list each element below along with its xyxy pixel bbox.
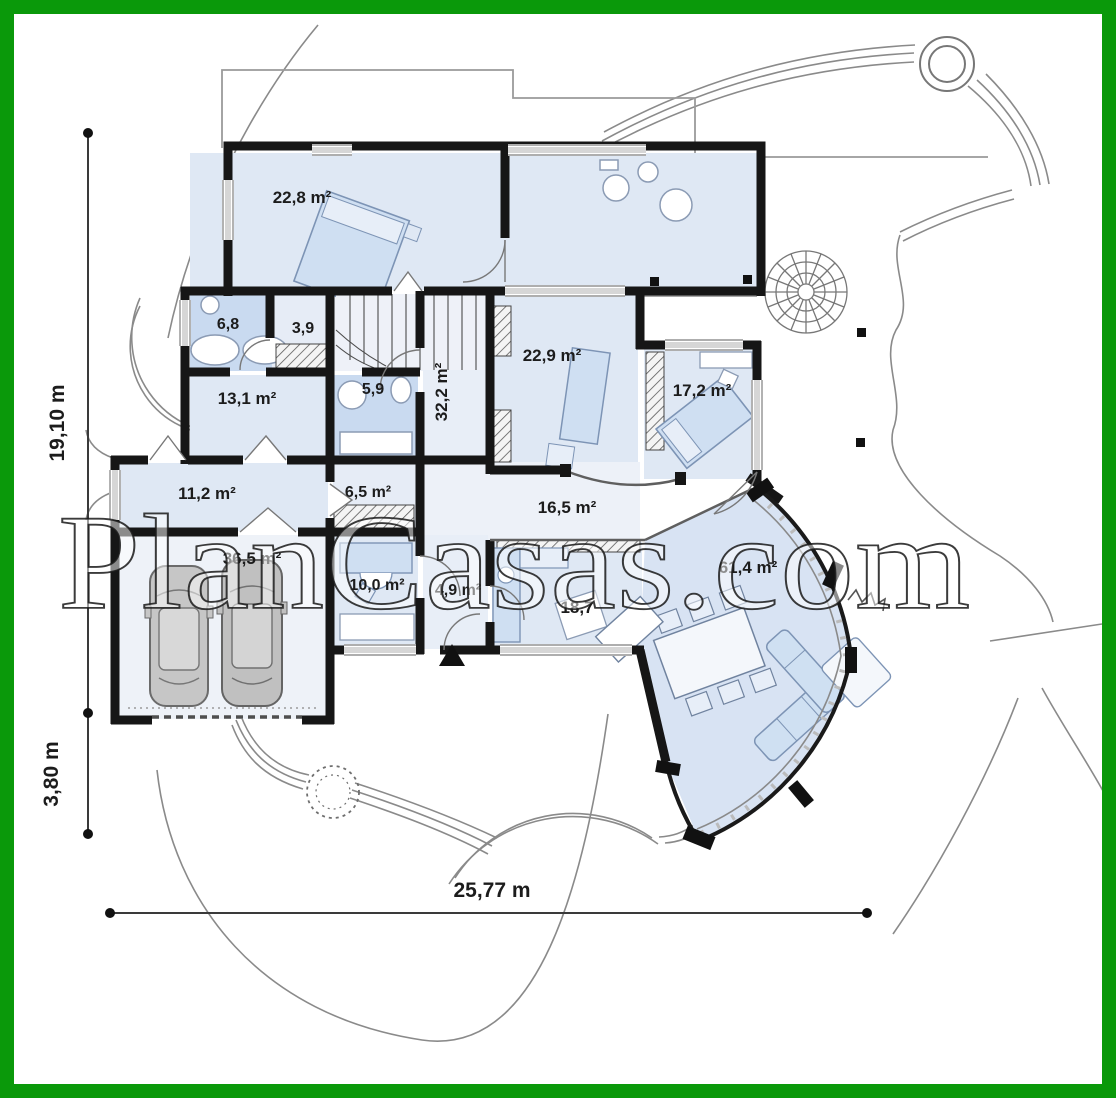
room-label-bath-top: 6,8 bbox=[217, 316, 239, 333]
room-label-bedroom-far-right: 17,2 m² bbox=[673, 381, 732, 400]
room-label-16-5: 16,5 m² bbox=[538, 498, 597, 517]
garden-circle-feature bbox=[920, 37, 974, 91]
plant-symbol bbox=[848, 590, 885, 611]
room-label-13-1: 13,1 m² bbox=[218, 389, 277, 408]
room-label-entry-hall: 4,9 m² bbox=[435, 582, 481, 599]
dimension-label-height-main: 19,10 m bbox=[46, 384, 69, 461]
floor-plan: 19,10 m 3,80 m 25,77 m 22,8 m² 6,8 3,9 1… bbox=[14, 14, 1102, 1084]
car bbox=[145, 566, 213, 706]
room-label-garage: 36,5 m² bbox=[223, 549, 282, 568]
room-label-living: 61,4 m² bbox=[719, 558, 778, 577]
spiral-staircase bbox=[765, 251, 847, 333]
room-label-bedroom-top: 22,8 m² bbox=[273, 188, 332, 207]
staircase bbox=[336, 294, 486, 370]
room-label-kitchen: 18,7 bbox=[560, 598, 593, 617]
room-label-bedroom-right: 22,9 m² bbox=[523, 346, 582, 365]
dimension-label-width: 25,77 m bbox=[453, 879, 530, 902]
tree-symbol bbox=[307, 766, 359, 818]
room-label-bath-mid: 5,9 bbox=[362, 381, 384, 398]
room-label-office: 10,0 m² bbox=[349, 577, 404, 594]
dimension-label-height-garage: 3,80 m bbox=[40, 741, 63, 806]
car bbox=[217, 560, 287, 706]
room-label-hall-vertical: 32,2 m² bbox=[432, 362, 451, 421]
floor-plan-svg: 19,10 m 3,80 m 25,77 m 22,8 m² 6,8 3,9 1… bbox=[14, 14, 1102, 1084]
room-label-hall-small: 6,5 m² bbox=[345, 484, 391, 501]
room-label-closet: 3,9 bbox=[292, 320, 314, 337]
room-label-utility: 11,2 m² bbox=[178, 484, 236, 503]
green-border-frame: 19,10 m 3,80 m 25,77 m 22,8 m² 6,8 3,9 1… bbox=[0, 0, 1116, 1098]
